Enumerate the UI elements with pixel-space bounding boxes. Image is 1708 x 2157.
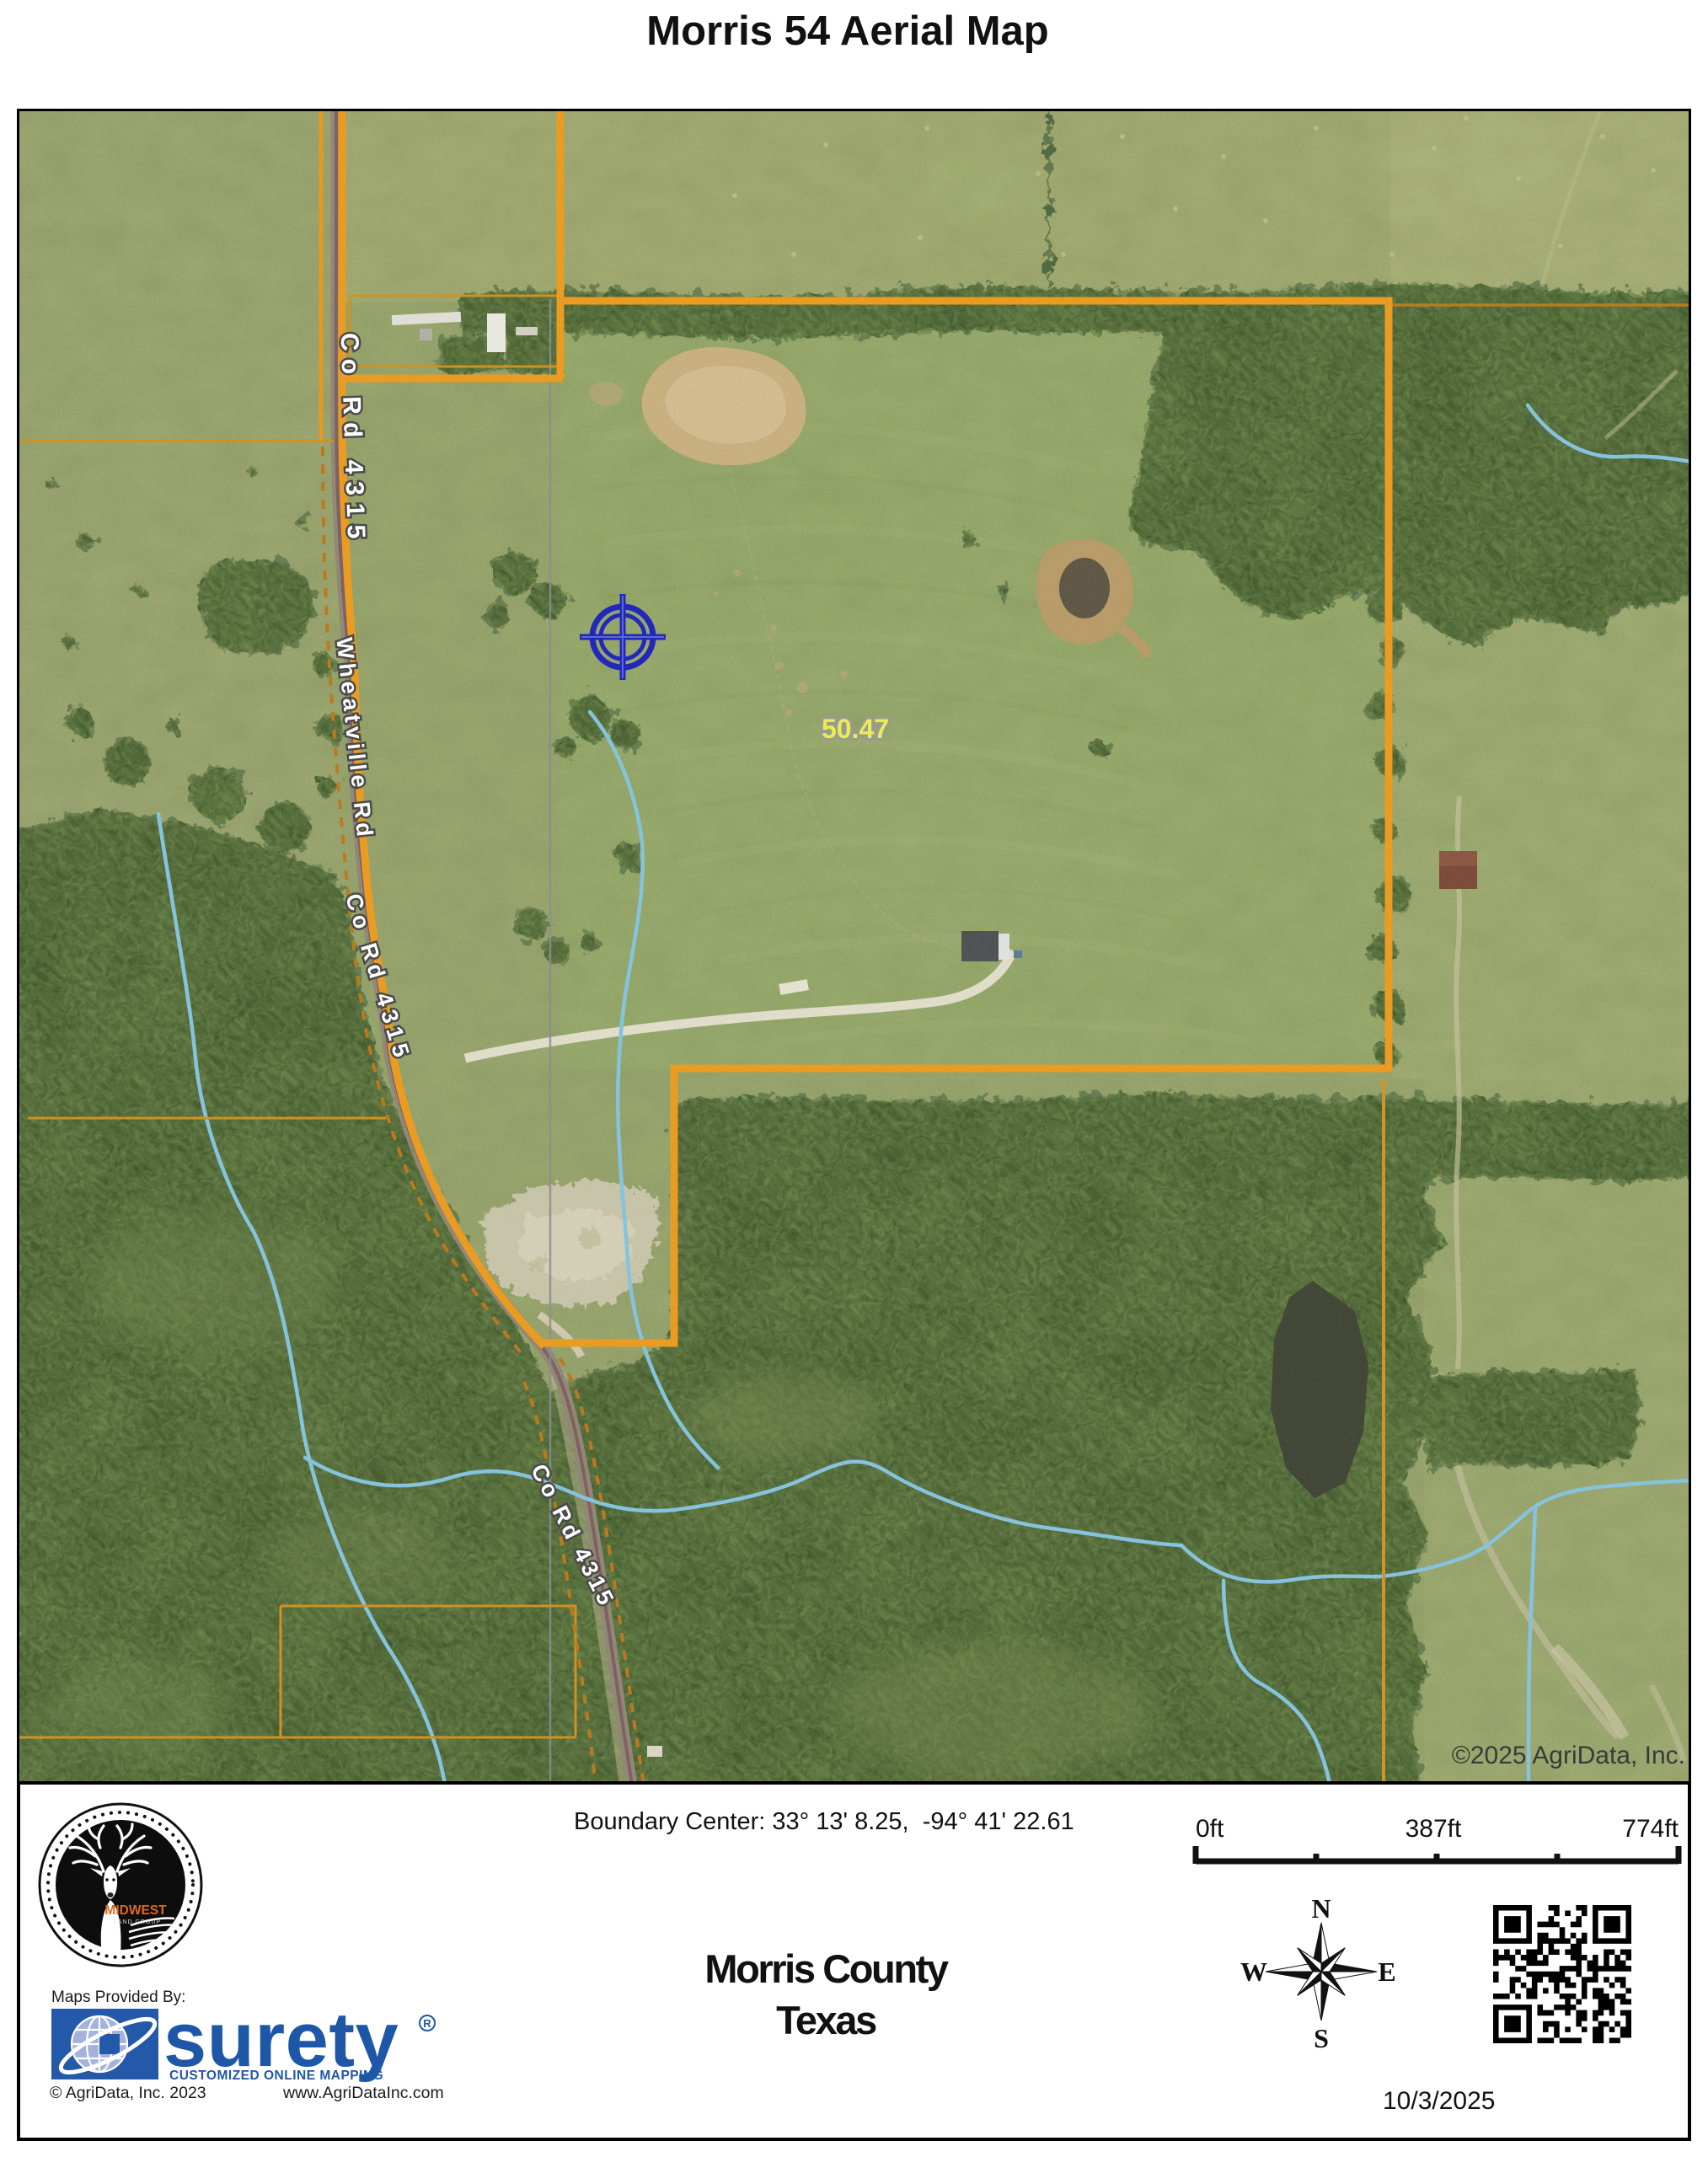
svg-text:387ft: 387ft <box>1405 1815 1462 1843</box>
svg-text:774ft: 774ft <box>1622 1815 1679 1843</box>
svg-text:0ft: 0ft <box>1196 1815 1224 1843</box>
svg-text:©2025 AgriData, Inc.: ©2025 AgriData, Inc. <box>1452 1742 1685 1769</box>
svg-text:E: E <box>1378 1956 1395 1987</box>
svg-text:LAND GROUP: LAND GROUP <box>114 1919 161 1925</box>
svg-text:MIDWEST: MIDWEST <box>104 1903 167 1918</box>
svg-text:CUSTOMIZED ONLINE MAPPING: CUSTOMIZED ONLINE MAPPING <box>169 2069 383 2083</box>
svg-text:N: N <box>1311 1893 1331 1924</box>
svg-text:W: W <box>1240 1956 1267 1987</box>
svg-text:50.47: 50.47 <box>822 714 889 744</box>
svg-text:S: S <box>1314 2023 1329 2053</box>
svg-text:R: R <box>423 2017 431 2030</box>
